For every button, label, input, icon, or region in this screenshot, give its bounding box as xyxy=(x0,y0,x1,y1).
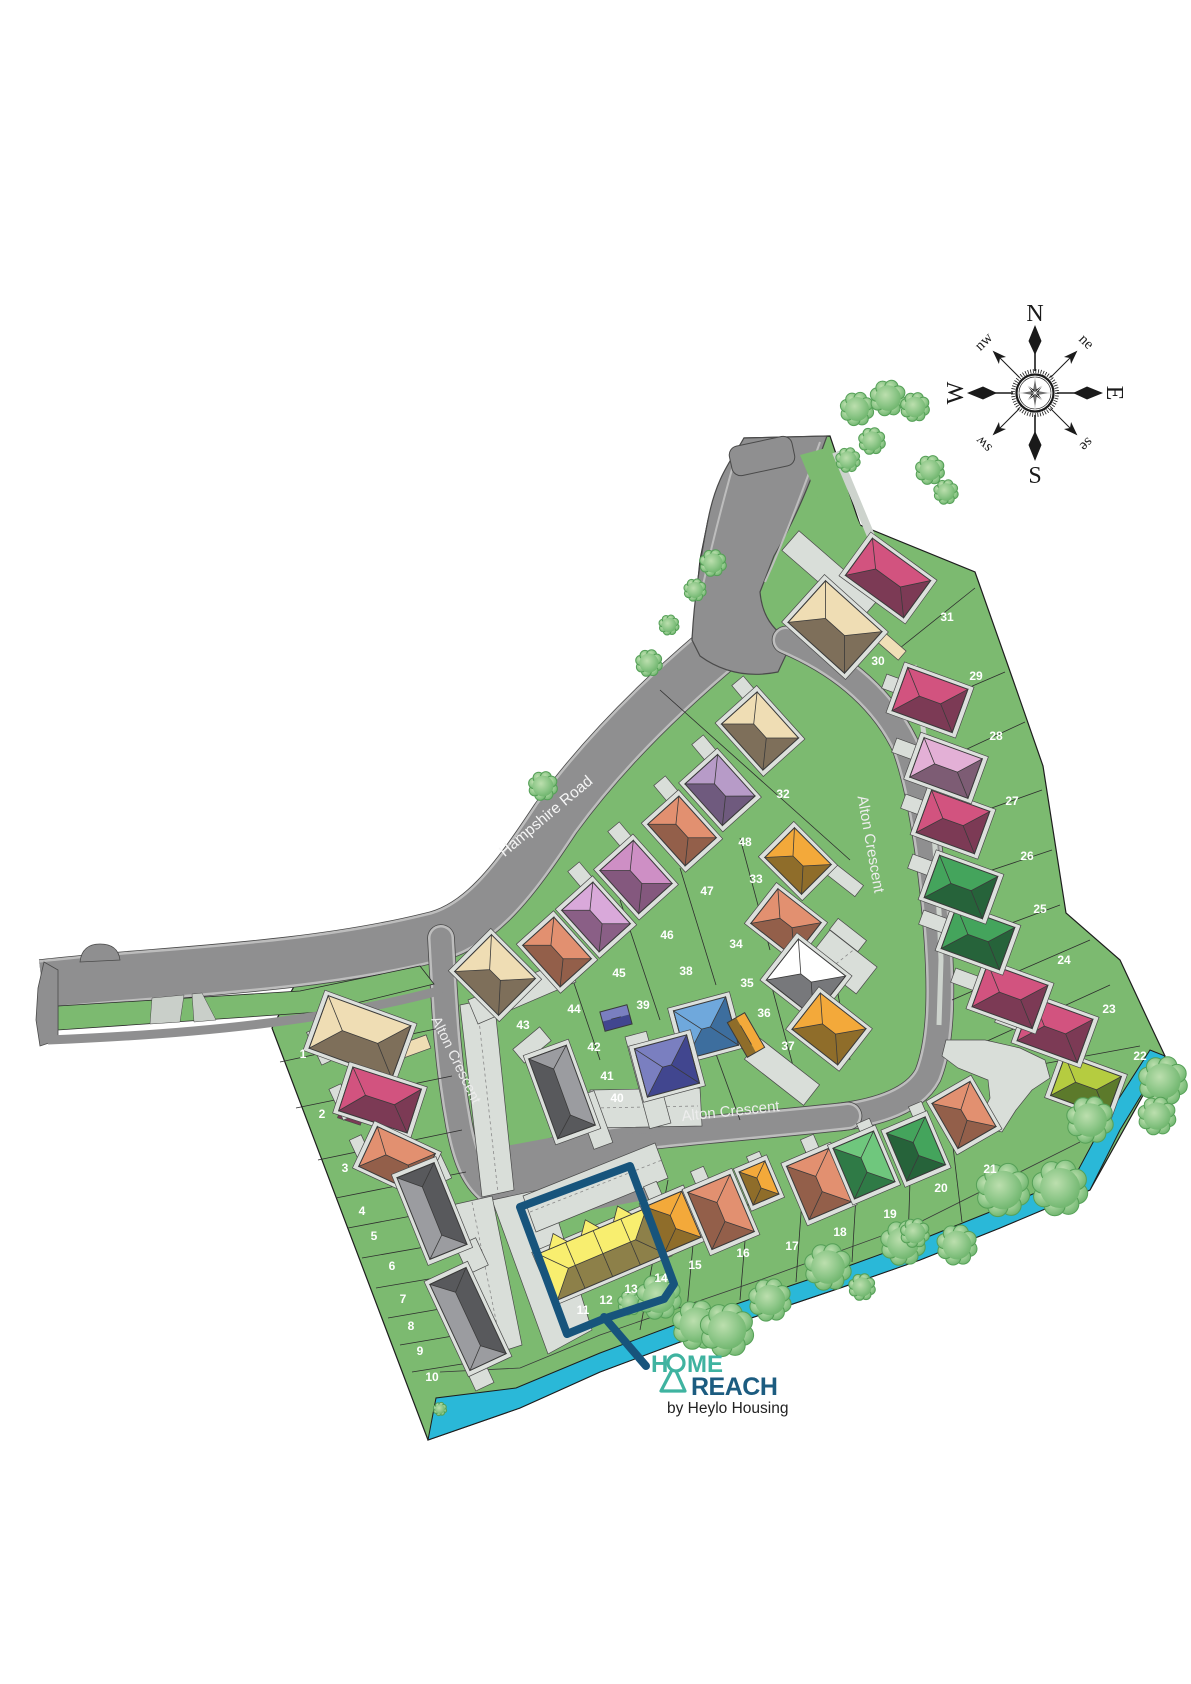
svg-text:46: 46 xyxy=(660,928,674,942)
svg-text:31: 31 xyxy=(940,610,954,624)
svg-text:9: 9 xyxy=(417,1344,424,1358)
svg-text:32: 32 xyxy=(776,787,790,801)
svg-text:30: 30 xyxy=(871,654,885,668)
svg-text:21: 21 xyxy=(983,1162,997,1176)
svg-text:3: 3 xyxy=(342,1161,349,1175)
svg-text:39: 39 xyxy=(636,998,650,1012)
svg-text:27: 27 xyxy=(1005,794,1019,808)
svg-text:8: 8 xyxy=(408,1319,415,1333)
svg-text:24: 24 xyxy=(1057,953,1071,967)
svg-text:7: 7 xyxy=(400,1292,407,1306)
svg-text:40: 40 xyxy=(610,1091,624,1105)
svg-text:S: S xyxy=(1028,463,1041,489)
svg-text:6: 6 xyxy=(389,1259,396,1273)
svg-text:47: 47 xyxy=(700,884,714,898)
svg-text:2: 2 xyxy=(319,1107,326,1121)
svg-text:18: 18 xyxy=(833,1225,847,1239)
svg-text:13: 13 xyxy=(624,1282,638,1296)
svg-text:48: 48 xyxy=(738,835,752,849)
svg-text:43: 43 xyxy=(516,1018,530,1032)
svg-text:1: 1 xyxy=(300,1047,307,1061)
svg-text:REACH: REACH xyxy=(691,1373,777,1401)
svg-text:W: W xyxy=(943,381,969,404)
svg-text:5: 5 xyxy=(371,1229,378,1243)
svg-text:4: 4 xyxy=(359,1204,366,1218)
svg-text:35: 35 xyxy=(740,976,754,990)
svg-text:41: 41 xyxy=(600,1069,614,1083)
svg-text:H: H xyxy=(651,1351,668,1378)
svg-text:by Heylo Housing: by Heylo Housing xyxy=(667,1400,788,1417)
svg-text:12: 12 xyxy=(599,1293,613,1307)
svg-text:38: 38 xyxy=(679,964,693,978)
svg-text:45: 45 xyxy=(612,966,626,980)
svg-text:23: 23 xyxy=(1102,1002,1116,1016)
svg-text:29: 29 xyxy=(969,669,983,683)
svg-text:N: N xyxy=(1026,301,1043,327)
svg-text:22: 22 xyxy=(1133,1049,1147,1063)
svg-text:11: 11 xyxy=(577,1303,590,1317)
svg-text:37: 37 xyxy=(781,1039,795,1053)
svg-text:16: 16 xyxy=(736,1246,750,1260)
svg-text:25: 25 xyxy=(1033,902,1047,916)
svg-text:15: 15 xyxy=(688,1258,702,1272)
svg-text:33: 33 xyxy=(749,872,763,886)
svg-text:36: 36 xyxy=(757,1006,771,1020)
svg-text:19: 19 xyxy=(883,1207,897,1221)
svg-text:E: E xyxy=(1101,386,1127,401)
svg-text:17: 17 xyxy=(785,1239,799,1253)
svg-text:10: 10 xyxy=(425,1370,439,1384)
svg-text:28: 28 xyxy=(989,729,1003,743)
svg-text:34: 34 xyxy=(729,937,743,951)
svg-text:44: 44 xyxy=(567,1002,581,1016)
svg-text:20: 20 xyxy=(934,1181,948,1195)
svg-text:42: 42 xyxy=(587,1040,601,1054)
svg-text:26: 26 xyxy=(1020,849,1034,863)
